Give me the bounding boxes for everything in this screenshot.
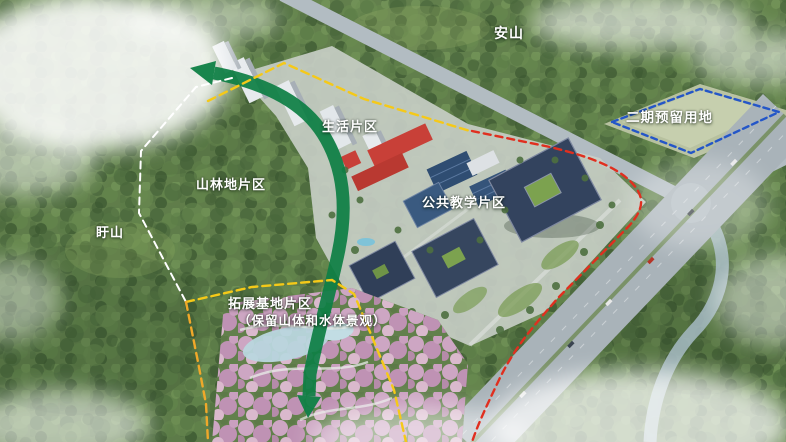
label-expansion-base-zone: 拓展基地片区 （保留山体和水体景观） <box>228 297 387 328</box>
aerial-scene <box>0 0 786 442</box>
label-forest-zone: 山林地片区 <box>196 178 266 194</box>
label-public-teaching-zone: 公共教学片区 <box>422 196 506 212</box>
label-mountain-anshan: 安山 <box>494 26 524 43</box>
label-expansion-line2: （保留山体和水体景观） <box>238 313 387 328</box>
label-expansion-line1: 拓展基地片区 <box>228 297 312 312</box>
campus-pool <box>357 238 375 246</box>
campus-masterplan-rendering: 安山 盱山 生活片区 山林地片区 公共教学片区 拓展基地片区 （保留山体和水体景… <box>0 0 786 442</box>
label-living-zone: 生活片区 <box>322 120 378 136</box>
label-mountain-xushan: 盱山 <box>96 226 124 242</box>
label-phase2-reserved-land: 二期预留用地 <box>626 110 713 126</box>
